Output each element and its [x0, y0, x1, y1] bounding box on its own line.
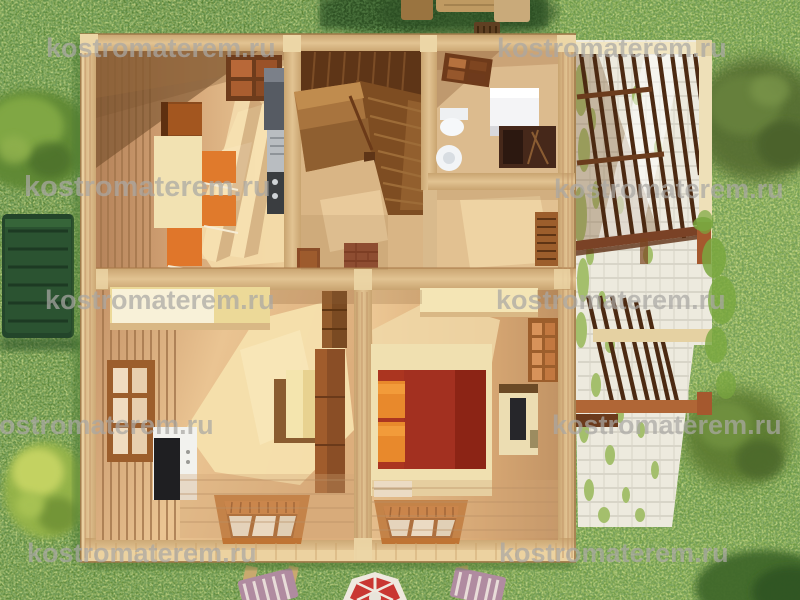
svg-text:kostromaterem.ru: kostromaterem.ru	[497, 33, 727, 63]
svg-text:kostromaterem.ru: kostromaterem.ru	[552, 410, 782, 440]
svg-text:kostromaterem.ru: kostromaterem.ru	[24, 171, 271, 203]
svg-text:kostromaterem.ru: kostromaterem.ru	[0, 410, 214, 440]
svg-text:kostromaterem.ru: kostromaterem.ru	[554, 174, 784, 204]
svg-text:kostromaterem.ru: kostromaterem.ru	[499, 538, 729, 568]
svg-text:kostromaterem.ru: kostromaterem.ru	[46, 33, 276, 63]
svg-text:kostromaterem.ru: kostromaterem.ru	[496, 285, 726, 315]
svg-text:kostromaterem.ru: kostromaterem.ru	[27, 538, 257, 568]
svg-text:kostromaterem.ru: kostromaterem.ru	[45, 285, 275, 315]
